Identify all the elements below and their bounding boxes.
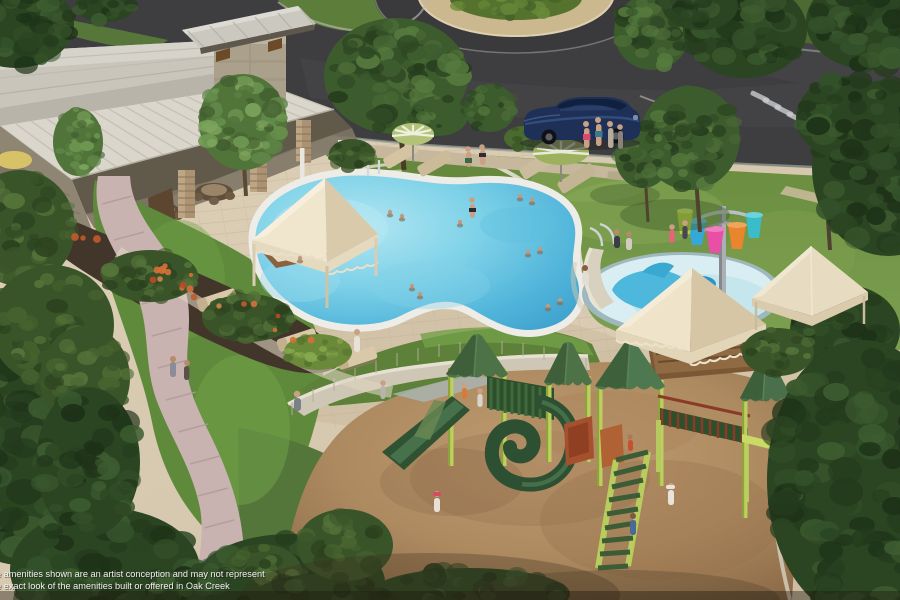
svg-text:e exact look of the amenities: e exact look of the amenities built or o… <box>0 581 230 591</box>
svg-text:e amenities shown are an artis: e amenities shown are an artist concepti… <box>0 569 265 579</box>
